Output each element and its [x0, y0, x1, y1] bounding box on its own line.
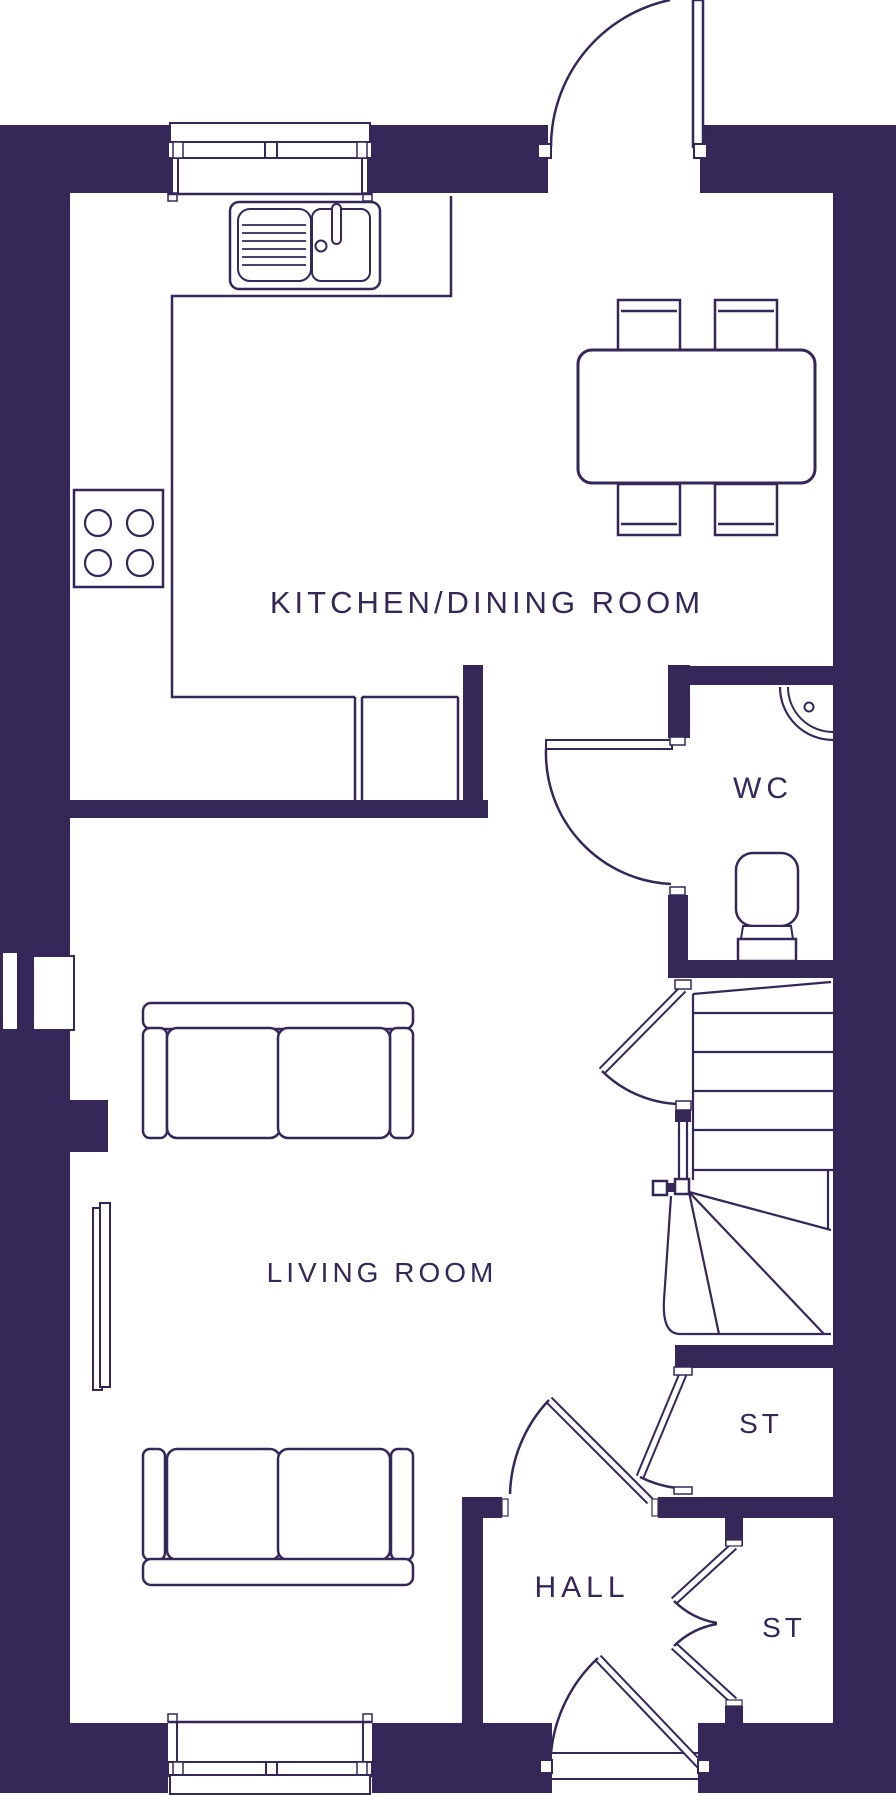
- closet-double-doors: [674, 1540, 742, 1706]
- room-label-wc: WC: [733, 772, 793, 805]
- room-label-hall: HALL: [534, 1571, 629, 1604]
- radiator-icon: [93, 1203, 110, 1390]
- dining-chair: [618, 484, 680, 535]
- room-label-living-room: LIVING ROOM: [267, 1257, 498, 1288]
- sink-icon: [230, 202, 380, 289]
- basin-icon: [780, 687, 833, 740]
- living-room-door: [502, 1400, 658, 1516]
- sofa: [143, 1449, 413, 1585]
- dining-chair: [715, 300, 777, 351]
- floorplan-page: KITCHEN/DINING ROOM WC LIVING ROOM ST HA…: [0, 0, 896, 1796]
- room-label-storage-lower: ST: [762, 1612, 806, 1643]
- floorplan-drawing: KITCHEN/DINING ROOM WC LIVING ROOM ST HA…: [0, 0, 896, 1796]
- dining-table: [578, 350, 815, 483]
- dining-chair: [618, 300, 680, 351]
- chimney-breast: [2, 952, 74, 1030]
- storage-door-upper: [640, 1367, 692, 1494]
- sofa: [143, 1003, 413, 1138]
- lobby-door: [602, 980, 691, 1110]
- wc-door: [546, 737, 685, 895]
- stair-newel-posts: [653, 1179, 689, 1195]
- hob-icon: [74, 490, 163, 587]
- room-label-kitchen-dining: KITCHEN/DINING ROOM: [270, 585, 704, 620]
- room-label-storage-upper: ST: [739, 1408, 783, 1439]
- toilet-icon: [736, 853, 798, 961]
- dining-chair: [715, 484, 777, 535]
- back-door: [538, 0, 707, 158]
- stairs: [664, 982, 833, 1334]
